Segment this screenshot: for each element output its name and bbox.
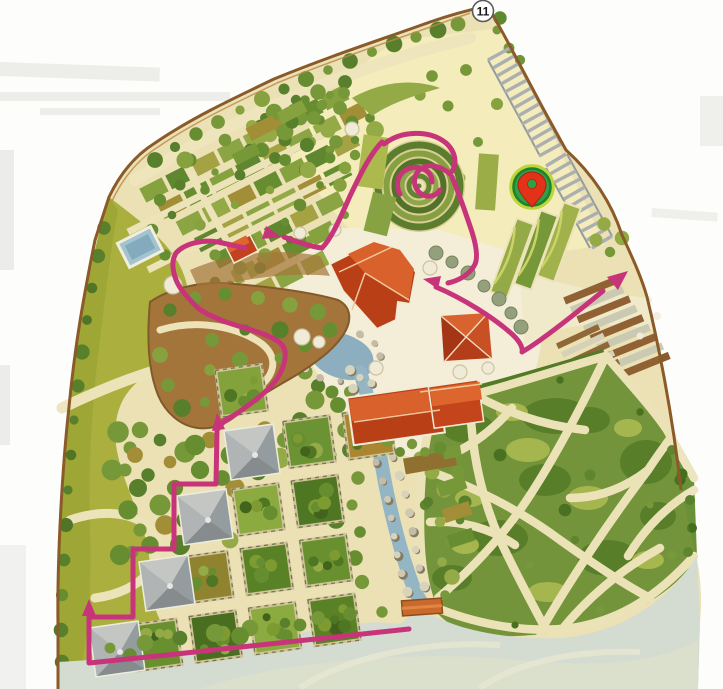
svg-text:11: 11 [477,5,490,19]
